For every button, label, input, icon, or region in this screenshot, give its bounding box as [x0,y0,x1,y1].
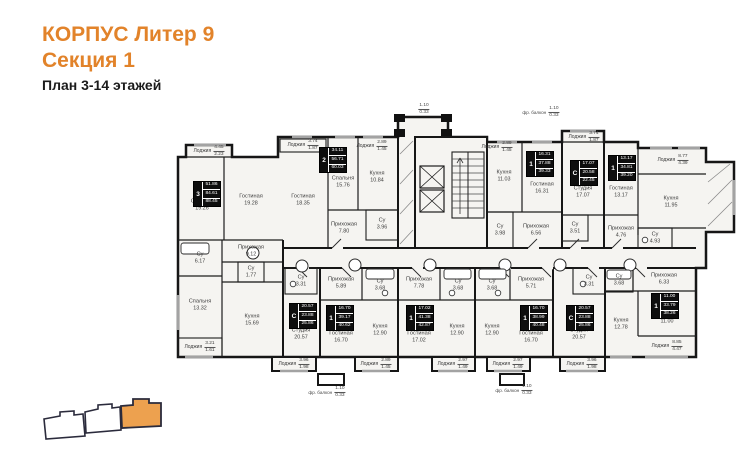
room-label: Су1.77 [246,265,257,278]
balcony-label: фр. балкон1.100.33 [495,384,532,396]
room-label: Кухня12.90 [485,323,500,336]
area-fraction: 1.100.33 [548,106,559,118]
room-label: Прихожая4.76 [608,225,634,238]
loggia-label: Лоджия3.961.98 [278,358,309,370]
loggia-label: Лоджия2.891.45 [360,358,391,370]
room-label: Кухня12.90 [450,323,465,336]
room-label: Су6.17 [195,251,206,264]
loggia-label: Лоджия3.961.98 [566,358,597,370]
loggia-label: Лоджия2.971.49 [492,358,523,370]
apartment-info-box: 234.1156.7160.03 [319,147,347,173]
area-fraction: 3.211.61 [204,341,215,353]
loggia-label: Лоджия3.211.61 [184,341,215,353]
room-label: Спальня13.32 [189,298,211,311]
room-label: Гостиная19.28 [239,193,262,206]
room-label: Су3.96 [377,217,388,230]
area-fraction: 8.854.47 [671,340,682,352]
plan-labels-layer: Спальня19.26Гостиная19.28Гостиная18.35Сп… [0,0,740,472]
area-fraction: 2.891.45 [501,141,512,153]
room-label: Гостиная18.35 [291,193,314,206]
room-label: Прихожая7.78 [406,276,432,289]
loggia-label: Лоджия2.971.49 [437,358,468,370]
area-fraction: 3.961.98 [586,358,597,370]
apartment-info-box: С20.5723.8825.86 [289,303,317,329]
apartment-info-box: 116.3137.8839.33 [526,151,554,177]
area-fraction: 2.971.49 [457,358,468,370]
balcony-label: фр. балкон1.100.33 [308,386,345,398]
loggia-label: Лоджия3.741.87 [568,131,599,143]
balcony-label: 1.100.33 [418,103,429,115]
area-fraction: 1.100.33 [521,384,532,396]
area-fraction: 3.741.87 [307,139,318,151]
room-label: Кухня11.95 [664,195,679,208]
room-label: Су3.51 [570,221,581,234]
loggia-label: Лоджия2.891.45 [356,140,387,152]
loggia-label: Лоджия4.452.23 [193,145,224,157]
room-label: Студия17.07 [574,185,593,198]
room-label: Су3.31 [296,274,307,287]
room-label: Су3.68 [453,278,464,291]
apartment-info-box: 116.7039.1740.62 [326,305,354,331]
apartment-info-box: 116.7038.9940.48 [520,305,548,331]
room-label: Су3.31 [584,274,595,287]
area-fraction: 4.452.23 [213,145,224,157]
apartment-info-box: С20.5723.8825.86 [566,305,594,331]
room-label: Кухня12.78 [614,317,629,330]
area-fraction: 1.100.33 [418,103,429,115]
room-label: Студия20.57 [292,327,311,340]
room-label: Прихожая7.80 [331,221,357,234]
room-label: Гостиная16.31 [530,181,553,194]
area-fraction: 2.891.45 [380,358,391,370]
area-fraction: 3.741.87 [588,131,599,143]
area-fraction: 2.971.49 [512,358,523,370]
area-fraction: 8.774.39 [677,154,688,166]
room-label: Су3.68 [375,278,386,291]
apartment-info-box: С17.0720.5822.45 [570,160,598,186]
apartment-info-box: 351.8684.6188.45 [193,181,221,207]
room-label: Кухня15.69 [245,313,260,326]
room-label: Су3.98 [495,223,506,236]
balcony-label: фр. балкон1.100.33 [522,106,559,118]
room-label: Гостиная16.70 [329,330,352,343]
room-label: Прихожая6.56 [523,223,549,236]
room-label: Прихожая9.12 [238,244,264,257]
room-label: Гостиная16.70 [519,330,542,343]
apartment-info-box: 113.1734.8139.20 [608,155,636,181]
floor-plan-page: { "header": { "building": "КОРПУС Литер … [0,0,740,472]
room-label: Кухня10.84 [370,170,385,183]
room-label: Спальня15.76 [332,175,354,188]
loggia-label: Лоджия8.774.39 [657,154,688,166]
room-label: Су4.93 [650,231,661,244]
area-fraction: 3.961.98 [298,358,309,370]
room-label: Су3.68 [487,278,498,291]
room-label: Гостиная17.02 [407,330,430,343]
room-label: Прихожая5.89 [328,276,354,289]
room-label: Прихожая6.33 [651,272,677,285]
apartment-info-box: 111.0033.7938.26 [651,293,679,319]
room-label: Кухня11.03 [497,169,512,182]
room-label: Кухня12.90 [373,323,388,336]
apartment-info-box: 117.0241.3842.87 [406,305,434,331]
room-label: Гостиная13.17 [609,185,632,198]
room-label: Су3.68 [614,273,625,286]
loggia-label: Лоджия8.854.47 [651,340,682,352]
room-label: Прихожая5.71 [518,276,544,289]
loggia-label: Лоджия3.741.87 [287,139,318,151]
area-fraction: 1.100.33 [334,386,345,398]
loggia-label: Лоджия2.891.45 [481,141,512,153]
area-fraction: 2.891.45 [376,140,387,152]
